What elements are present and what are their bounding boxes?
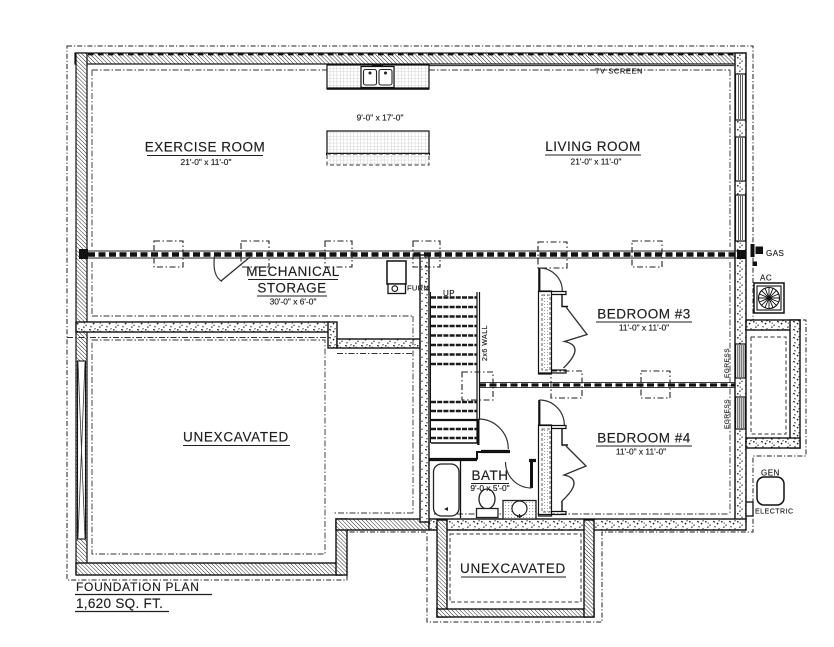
svg-text:EGRESS: EGRESS [724, 399, 731, 429]
svg-text:TV SCREEN: TV SCREEN [595, 67, 643, 76]
svg-text:11'-0" x 11'-0": 11'-0" x 11'-0" [616, 447, 666, 457]
svg-text:UNEXCAVATED: UNEXCAVATED [183, 430, 289, 445]
svg-text:ELECTRIC: ELECTRIC [755, 509, 794, 516]
svg-text:BEDROOM #4: BEDROOM #4 [597, 431, 691, 446]
svg-text:GAS: GAS [766, 249, 784, 258]
svg-text:MECHANICAL: MECHANICAL [246, 264, 340, 279]
svg-text:AC: AC [760, 274, 772, 283]
svg-text:EGRESS: EGRESS [724, 348, 731, 378]
svg-text:21'-0" x 11'-0": 21'-0" x 11'-0" [571, 157, 622, 167]
svg-text:30'-0" x 6'-0": 30'-0" x 6'-0" [270, 297, 317, 307]
svg-text:BATH: BATH [471, 468, 508, 483]
svg-text:EXERCISE ROOM: EXERCISE ROOM [145, 140, 266, 155]
svg-text:11'-0" x 11'-0": 11'-0" x 11'-0" [619, 323, 669, 333]
svg-text:21'-0" x 11'-0": 21'-0" x 11'-0" [181, 157, 232, 167]
svg-text:BEDROOM #3: BEDROOM #3 [597, 307, 691, 322]
svg-text:9'-0" x 17'-0": 9'-0" x 17'-0" [357, 113, 404, 123]
svg-text:1,620 SQ. FT.: 1,620 SQ. FT. [76, 596, 163, 611]
svg-text:FOUNDATION PLAN: FOUNDATION PLAN [76, 580, 200, 594]
svg-text:LIVING ROOM: LIVING ROOM [545, 139, 641, 154]
svg-text:9'-0 x 5'-0": 9'-0 x 5'-0" [470, 483, 509, 493]
svg-text:2x6 WALL: 2x6 WALL [482, 325, 489, 361]
svg-text:UNEXCAVATED: UNEXCAVATED [460, 561, 566, 576]
svg-text:STORAGE: STORAGE [257, 281, 326, 296]
svg-text:UP: UP [443, 289, 455, 298]
svg-text:FURN: FURN [407, 284, 429, 293]
svg-text:GEN: GEN [761, 469, 780, 478]
